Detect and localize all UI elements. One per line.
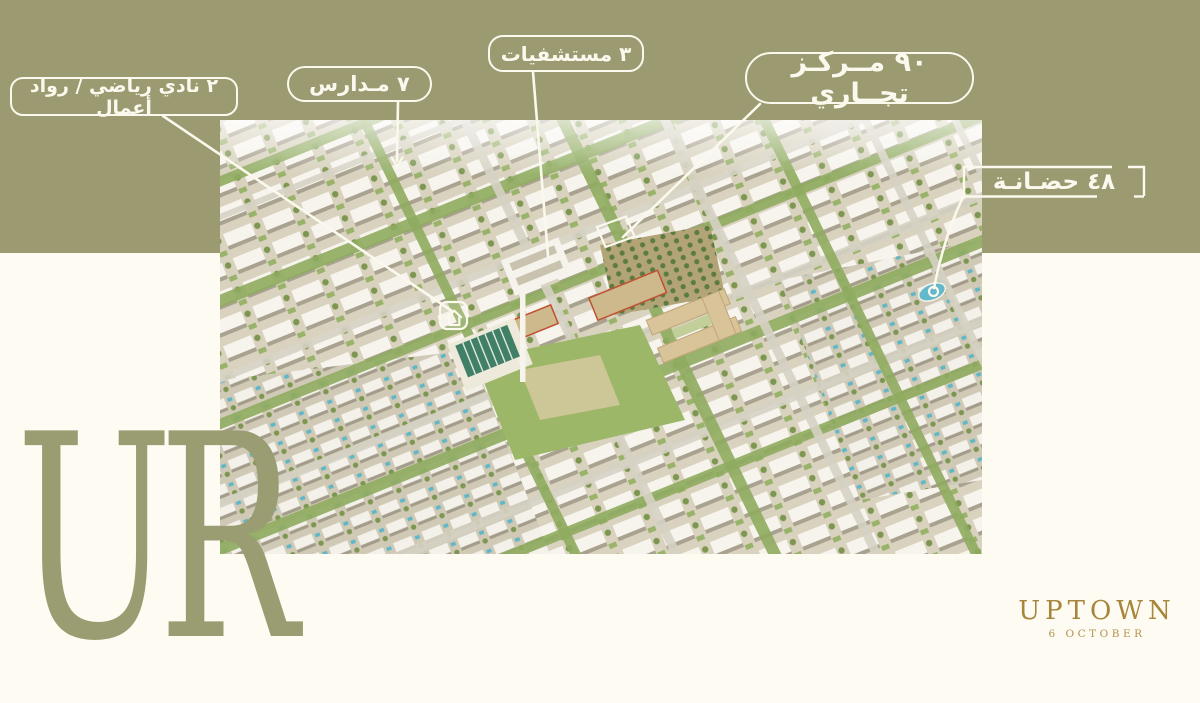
label-commercial-centers: ٩٠ مــركـز تجــاري: [745, 52, 974, 104]
uptown-logo-name: UPTOWN: [1018, 597, 1176, 626]
label-sports-club: ٢ نادي رياضي / رواد أعمال: [10, 77, 238, 116]
label-schools-text: ٧ مـدارس: [309, 72, 410, 96]
uptown-logo: UPTOWN 6 OCTOBER: [1018, 597, 1176, 640]
aerial-photo-graphic: [220, 120, 982, 554]
label-hospitals: ٣ مستشفيات: [488, 35, 644, 72]
label-nurseries: ٤٨ حضـانـة: [962, 165, 1146, 198]
label-nurseries-text: ٤٨ حضـانـة: [993, 169, 1115, 195]
page-background: { "theme": { "background": "#fdfbf2", "b…: [0, 0, 1200, 675]
label-schools: ٧ مـدارس: [287, 66, 432, 102]
aerial-photo: [220, 120, 982, 554]
uptown-logo-subtitle: 6 OCTOBER: [1018, 628, 1176, 640]
label-hospitals-text: ٣ مستشفيات: [501, 42, 632, 66]
ur-monogram-logo: UR: [16, 398, 284, 680]
label-commercial-centers-text: ٩٠ مــركـز تجــاري: [747, 47, 972, 109]
label-sports-club-text: ٢ نادي رياضي / رواد أعمال: [12, 75, 236, 119]
